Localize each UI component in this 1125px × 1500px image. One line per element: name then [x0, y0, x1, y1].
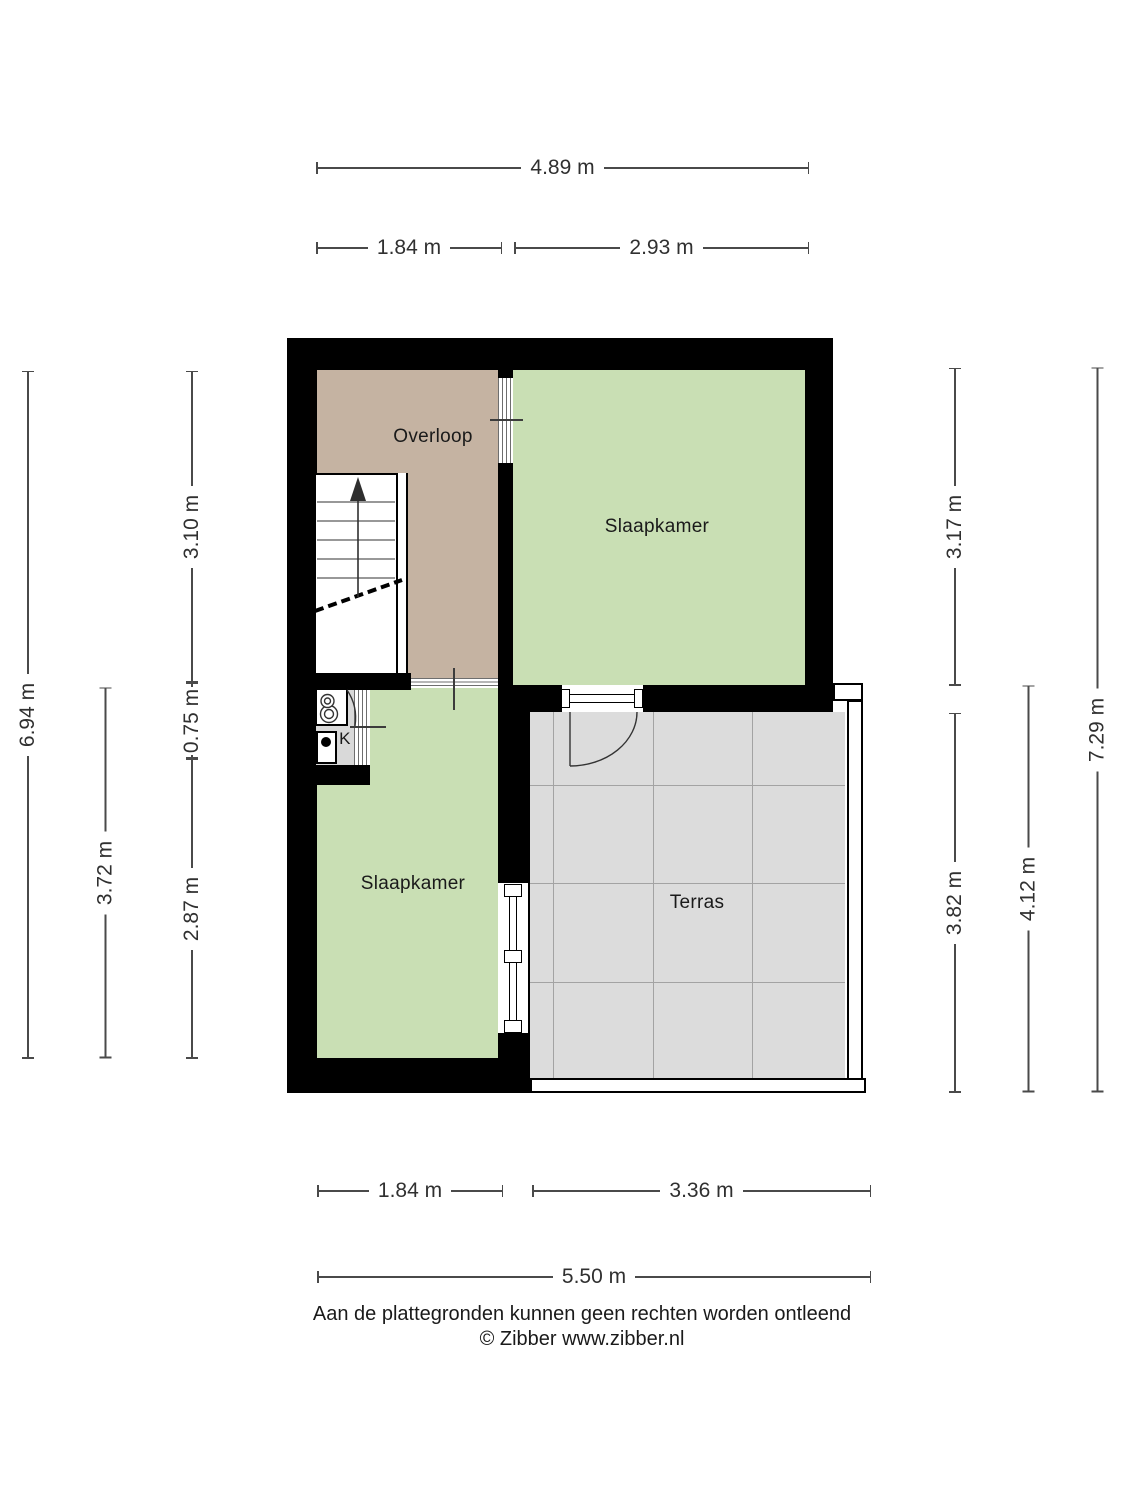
terrace-grid-line [530, 883, 845, 884]
dimension-label: 4.12 m [1018, 848, 1040, 930]
dimension-right-total: 7.29 m [1087, 368, 1109, 1093]
railing-right [847, 700, 863, 1090]
railing-bottom [530, 1078, 866, 1093]
label-kitchen: K [339, 729, 351, 749]
dimension-right-seg2: 3.82 m [944, 713, 966, 1093]
dimension-left-seg3: 2.87 m [181, 759, 203, 1059]
dimension-label: 5.50 m [553, 1266, 635, 1288]
label-slaapkamer-top: Slaapkamer [605, 516, 709, 538]
dimension-label: 3.36 m [660, 1180, 742, 1202]
dimension-left-lower: 3.72 m [95, 688, 117, 1059]
dimension-right-seg1: 3.17 m [944, 368, 966, 686]
railing-connector [833, 683, 863, 701]
dimension-right-lower: 4.12 m [1018, 686, 1040, 1093]
window-tick [490, 419, 523, 421]
dimension-top-total: 4.89 m [316, 157, 809, 179]
label-overloop: Overloop [393, 426, 473, 448]
window-connector [504, 950, 522, 963]
staircase-rail [396, 473, 408, 673]
dimension-label: 2.87 m [181, 868, 203, 950]
dimension-label: 1.84 m [368, 237, 450, 259]
dimension-label: 3.82 m [944, 862, 966, 944]
wall-kitchen-bottom [316, 765, 370, 785]
dimension-label: 3.72 m [95, 832, 117, 914]
stove [315, 688, 348, 726]
dimension-label: 6.94 m [17, 674, 39, 756]
door-terras-frame [570, 694, 635, 703]
dimension-bottom-right: 3.36 m [532, 1180, 871, 1202]
dimension-bottom-total: 5.50 m [317, 1266, 871, 1288]
floorplan-page: Overloop Slaapkamer Slaapkamer Terras K … [0, 0, 1125, 1500]
sink-unit [316, 731, 337, 764]
dimension-left-total: 6.94 m [17, 371, 39, 1059]
dimension-top-left: 1.84 m [316, 237, 502, 259]
terrace-grid-line [530, 785, 845, 786]
opening-tick [453, 668, 455, 710]
copyright-text: © Zibber www.zibber.nl [0, 1328, 1125, 1351]
terrace-grid-line [752, 712, 753, 1078]
dimension-label: 4.89 m [521, 157, 603, 179]
dimension-left-seg2: 0.75 m [181, 683, 203, 759]
kitchen-tick [350, 726, 386, 728]
dimension-top-right: 2.93 m [514, 237, 809, 259]
disclaimer-text: Aan de plattegronden kunnen geen rechten… [0, 1303, 1125, 1326]
door-terras-jamb-right [634, 689, 643, 708]
dimension-label: 1.84 m [369, 1180, 451, 1202]
dimension-label: 2.93 m [620, 237, 702, 259]
label-terras: Terras [670, 892, 725, 914]
dimension-label: 0.75 m [181, 687, 203, 755]
label-slaapkamer-bottom: Slaapkamer [361, 873, 465, 895]
terrace-grid-line [530, 982, 845, 983]
dimension-left-seg1: 3.10 m [181, 371, 203, 683]
terrace-grid-line [553, 712, 554, 1078]
dimension-label: 3.10 m [181, 486, 203, 568]
dimension-label: 3.17 m [944, 486, 966, 568]
window-connector [504, 1020, 522, 1033]
dimension-bottom-left: 1.84 m [317, 1180, 503, 1202]
terrace-grid-line [653, 712, 654, 1078]
door-terras-jamb-left [561, 689, 570, 708]
staircase [316, 473, 408, 673]
dimension-label: 7.29 m [1087, 689, 1109, 771]
window-connector [504, 884, 522, 897]
